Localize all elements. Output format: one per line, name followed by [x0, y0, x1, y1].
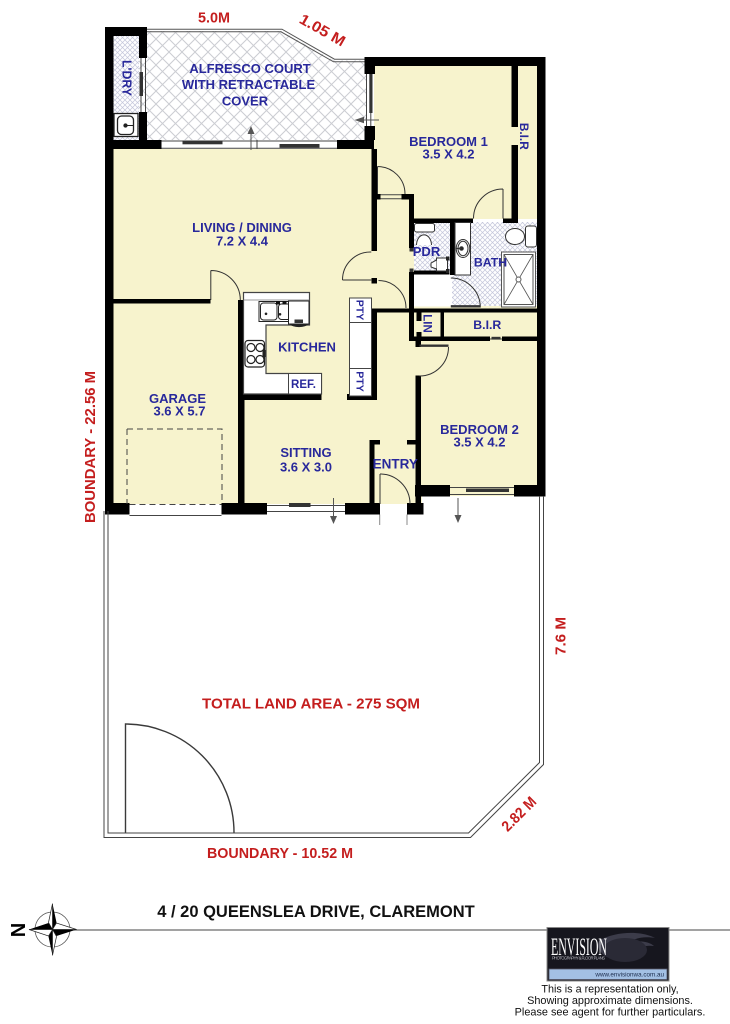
svg-text:PTY: PTY [354, 371, 366, 391]
svg-text:SITTING: SITTING [280, 445, 331, 460]
svg-text:WITH RETRACTABLE: WITH RETRACTABLE [182, 77, 316, 92]
svg-text:5.0M: 5.0M [198, 10, 230, 27]
svg-text:This is a representation only,: This is a representation only, [541, 984, 678, 996]
svg-text:COVER: COVER [222, 94, 269, 109]
svg-text:L'DRY: L'DRY [120, 60, 135, 96]
svg-text:3.6 X 5.7: 3.6 X 5.7 [153, 404, 205, 419]
svg-text:7.2 X 4.4: 7.2 X 4.4 [216, 234, 269, 249]
svg-text:www.envisionwa.com.au: www.envisionwa.com.au [594, 972, 664, 979]
svg-text:7.6 M: 7.6 M [553, 617, 570, 655]
svg-text:LIN: LIN [421, 314, 433, 333]
svg-text:BATH: BATH [474, 256, 507, 270]
svg-text:3.6 X 3.0: 3.6 X 3.0 [280, 460, 332, 475]
svg-text:B.I.R: B.I.R [517, 123, 531, 150]
svg-text:3.5 X 4.2: 3.5 X 4.2 [422, 146, 474, 161]
svg-text:PDR: PDR [413, 244, 441, 259]
svg-text:ENTRY: ENTRY [373, 456, 418, 471]
svg-text:KITCHEN: KITCHEN [278, 340, 336, 355]
svg-text:Please see agent for further p: Please see agent for further particulars… [515, 1007, 706, 1019]
svg-text:BOUNDARY - 10.52 M: BOUNDARY - 10.52 M [207, 845, 353, 862]
svg-text:B.I.R: B.I.R [473, 318, 501, 332]
svg-text:ALFRESCO COURT: ALFRESCO COURT [189, 61, 310, 76]
svg-text:PHOTOGRAPHY & FLOOR PLANS: PHOTOGRAPHY & FLOOR PLANS [552, 956, 605, 961]
svg-text:REF.: REF. [291, 379, 316, 391]
svg-text:TOTAL LAND AREA - 275 SQM: TOTAL LAND AREA - 275 SQM [202, 696, 420, 713]
svg-text:BOUNDARY - 22.56 M: BOUNDARY - 22.56 M [82, 371, 99, 523]
svg-text:4 / 20 QUEENSLEA DRIVE, CLAREM: 4 / 20 QUEENSLEA DRIVE, CLAREMONT [157, 903, 475, 921]
svg-text:PTY: PTY [354, 300, 366, 320]
svg-text:N: N [8, 923, 30, 937]
svg-text:Showing approximate dimensions: Showing approximate dimensions. [527, 995, 693, 1007]
svg-text:3.5 X 4.2: 3.5 X 4.2 [453, 435, 505, 450]
